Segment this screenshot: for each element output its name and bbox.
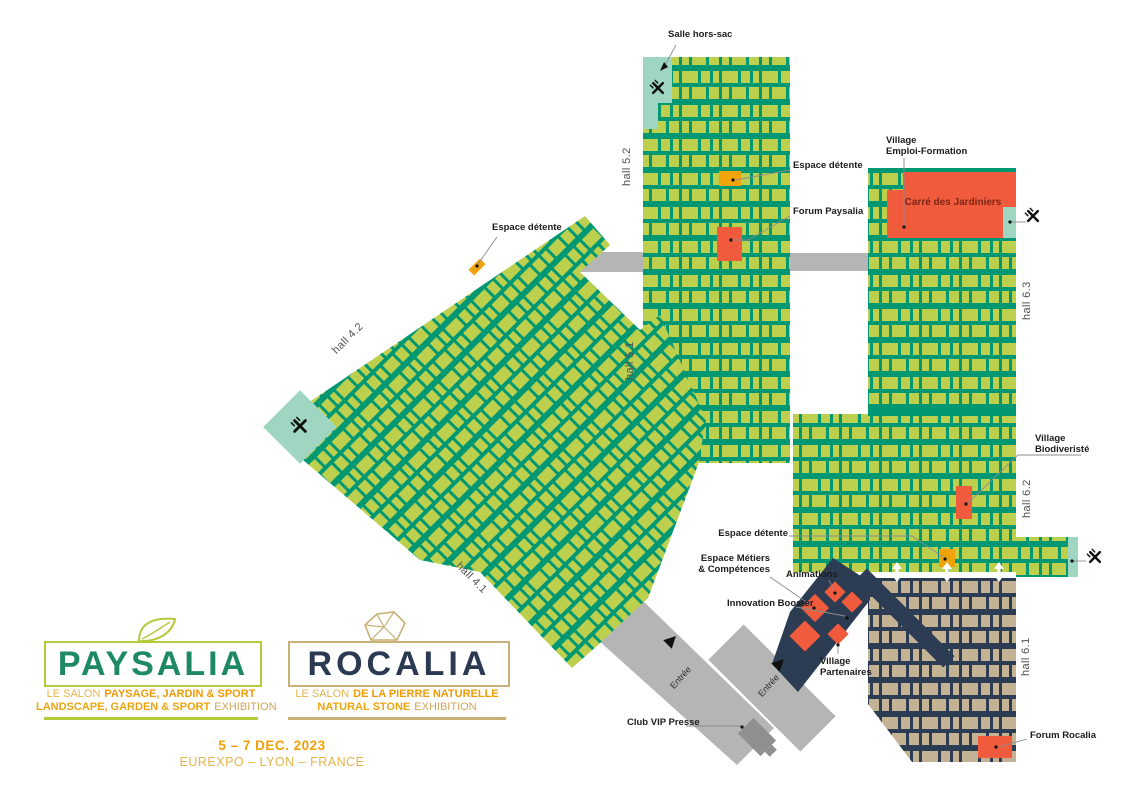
paysalia-wordmark: PAYSALIA <box>58 645 248 684</box>
hall-label-6-1: hall 6.1 <box>1020 637 1032 676</box>
floor-plan: Salle hors-sac Espace détente Espace dét… <box>0 0 1140 805</box>
rocalia-rule <box>288 717 506 720</box>
paysalia-tagline-en: LANDSCAPE, GARDEN & SPORTEXHIBITION <box>36 701 266 714</box>
leaf-icon <box>136 614 178 644</box>
rocalia-tagline-en: NATURAL STONEEXHIBITION <box>282 701 512 714</box>
label-espace-metiers: Espace Métiers & Compétences <box>690 553 770 575</box>
label-club-vip-presse: Club VIP Presse <box>627 717 700 728</box>
forum-paysalia-block <box>717 227 742 261</box>
label-village-biodiversite: Village Biodiveristé <box>1035 433 1089 455</box>
label-village-partenaires: Village Partenaires <box>820 656 872 678</box>
restaurant-icon <box>1086 548 1103 565</box>
rocalia-tagline-fr: LE SALONDE LA PIERRE NATURELLE <box>282 688 512 701</box>
village-bio-block <box>956 486 972 519</box>
label-innovation-booster: Innovation Booster <box>727 598 814 609</box>
rocalia-wordmark: ROCALIA <box>308 645 491 684</box>
stone-icon <box>362 610 408 644</box>
hall-label-6-2: hall 6.2 <box>1021 479 1033 518</box>
label-village-emploi: Village Emploi-Formation <box>886 135 967 157</box>
label-animations: Animations <box>786 569 838 580</box>
rocalia-logo: ROCALIA <box>288 641 510 687</box>
hall-6-1 <box>856 569 1016 762</box>
label-espace-detente-h52: Espace détente <box>793 160 863 171</box>
salle-hors-sac-area <box>643 57 672 103</box>
label-salle-hors-sac: Salle hors-sac <box>668 29 732 40</box>
paysalia-rule <box>44 717 258 720</box>
espace-detente-block-h52 <box>719 171 741 186</box>
event-venue: EUREXPO – LYON – FRANCE <box>142 755 402 769</box>
hall-4 <box>263 216 706 668</box>
event-dates: 5 – 7 DEC. 2023 <box>142 738 402 753</box>
restaurant-icon <box>1024 207 1041 224</box>
corridor-hall5-hall6 <box>788 253 870 271</box>
paysalia-logo: PAYSALIA <box>44 641 262 687</box>
label-espace-detente-h42: Espace détente <box>492 222 562 233</box>
label-forum-rocalia: Forum Rocalia <box>1030 730 1096 741</box>
label-carre-des-jardiniers: Carré des Jardiniers <box>898 197 1008 208</box>
hall-label-5-1: hall 5.1 <box>624 341 636 380</box>
paysalia-tagline-fr: LE SALONPAYSAGE, JARDIN & SPORT <box>36 688 266 701</box>
hall62-annex <box>1016 537 1068 577</box>
hall-label-6-3: hall 6.3 <box>1021 281 1033 320</box>
label-espace-detente-h62: Espace détente <box>688 528 788 539</box>
label-forum-paysalia: Forum Paysalia <box>793 206 863 217</box>
hall-label-5-2: hall 5.2 <box>621 147 633 186</box>
